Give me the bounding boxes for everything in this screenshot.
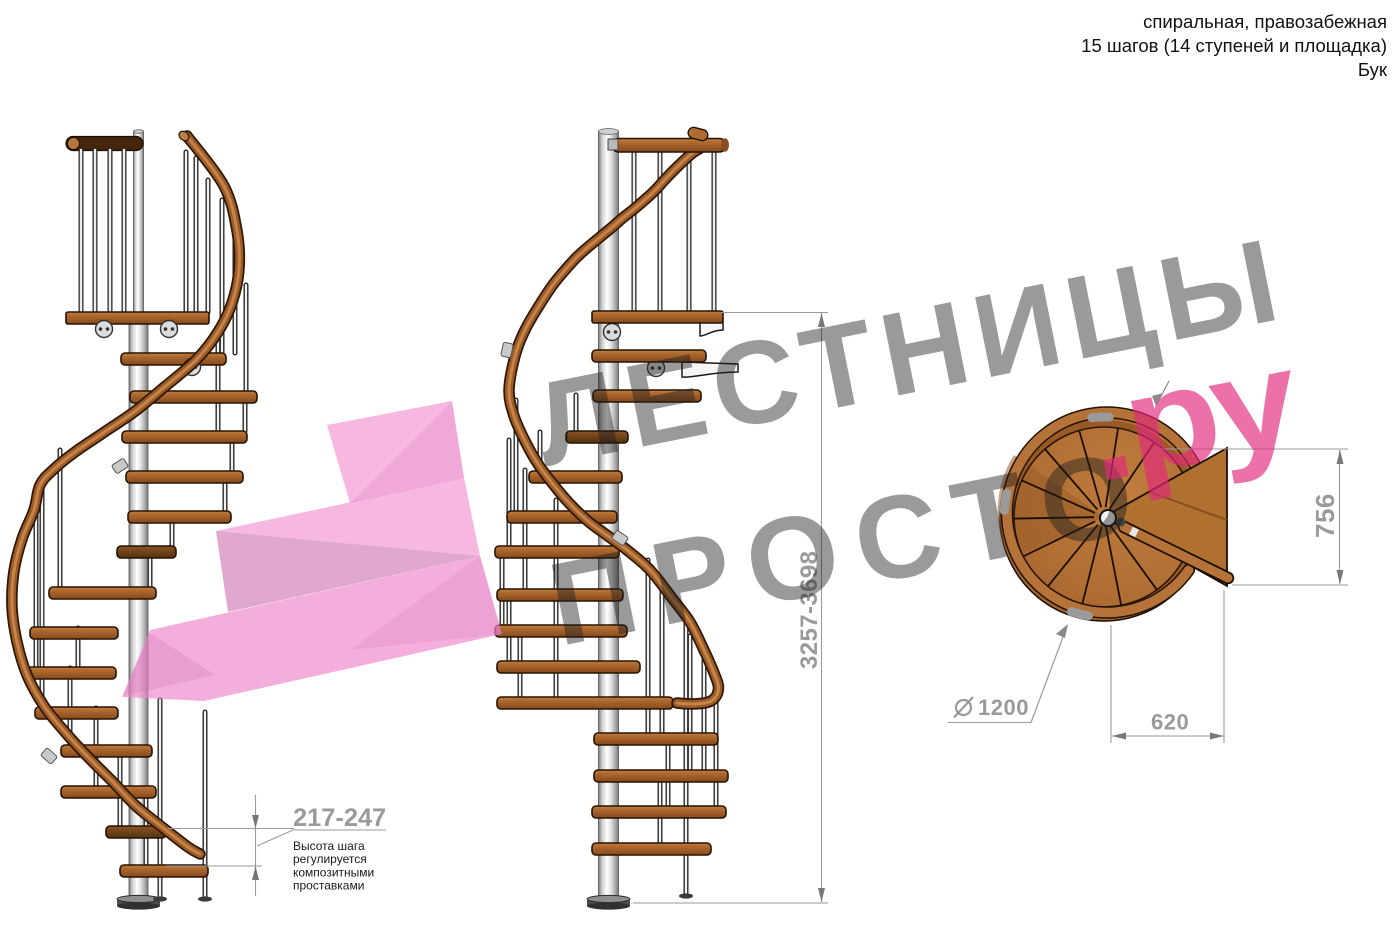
svg-text:спиральная, правозабежная: спиральная, правозабежная <box>1143 11 1387 32</box>
svg-text:композитными: композитными <box>293 865 374 879</box>
svg-text:регулируется: регулируется <box>293 852 367 866</box>
svg-text:проставками: проставками <box>293 879 364 893</box>
svg-text:1200: 1200 <box>978 695 1029 720</box>
svg-text:Бук: Бук <box>1358 59 1388 80</box>
svg-text:15 шагов (14 ступеней и площад: 15 шагов (14 ступеней и площадка) <box>1081 35 1387 56</box>
svg-text:217-247: 217-247 <box>293 804 386 832</box>
svg-text:620: 620 <box>1151 710 1189 735</box>
svg-text:Высота шага: Высота шага <box>293 839 365 853</box>
svg-text:756: 756 <box>1310 493 1340 538</box>
